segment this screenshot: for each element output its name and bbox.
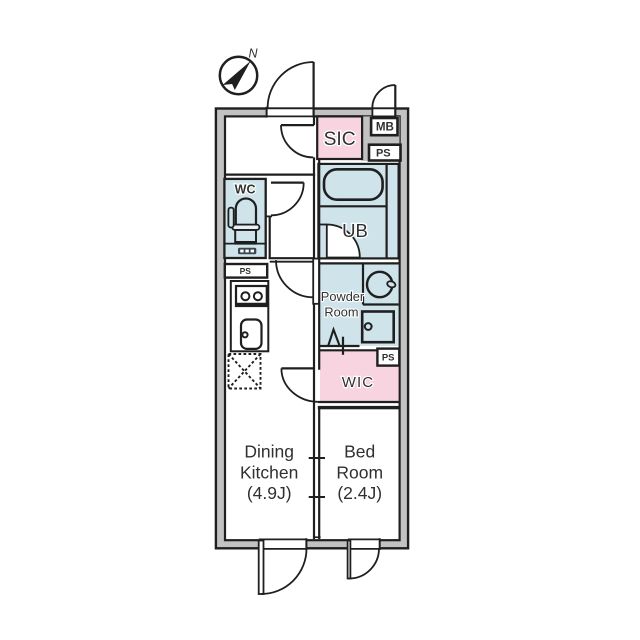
svg-text:UB: UB bbox=[342, 220, 368, 241]
svg-text:PS: PS bbox=[240, 266, 252, 276]
svg-text:PS: PS bbox=[376, 147, 391, 159]
svg-text:WIC: WIC bbox=[342, 374, 374, 391]
svg-text:Kitchen: Kitchen bbox=[240, 463, 298, 483]
svg-text:N: N bbox=[248, 47, 258, 61]
svg-text:MB: MB bbox=[376, 121, 394, 134]
svg-text:Room: Room bbox=[324, 304, 358, 319]
svg-text:(2.4J): (2.4J) bbox=[337, 483, 382, 503]
svg-text:Powder: Powder bbox=[321, 289, 365, 304]
svg-text:SIC: SIC bbox=[324, 129, 356, 150]
svg-text:Dining: Dining bbox=[244, 441, 294, 461]
svg-text:Bed: Bed bbox=[344, 441, 375, 461]
svg-text:Room: Room bbox=[336, 463, 383, 483]
svg-text:PS: PS bbox=[382, 353, 395, 364]
svg-text:(4.9J): (4.9J) bbox=[247, 483, 292, 503]
svg-text:WC: WC bbox=[235, 183, 256, 197]
